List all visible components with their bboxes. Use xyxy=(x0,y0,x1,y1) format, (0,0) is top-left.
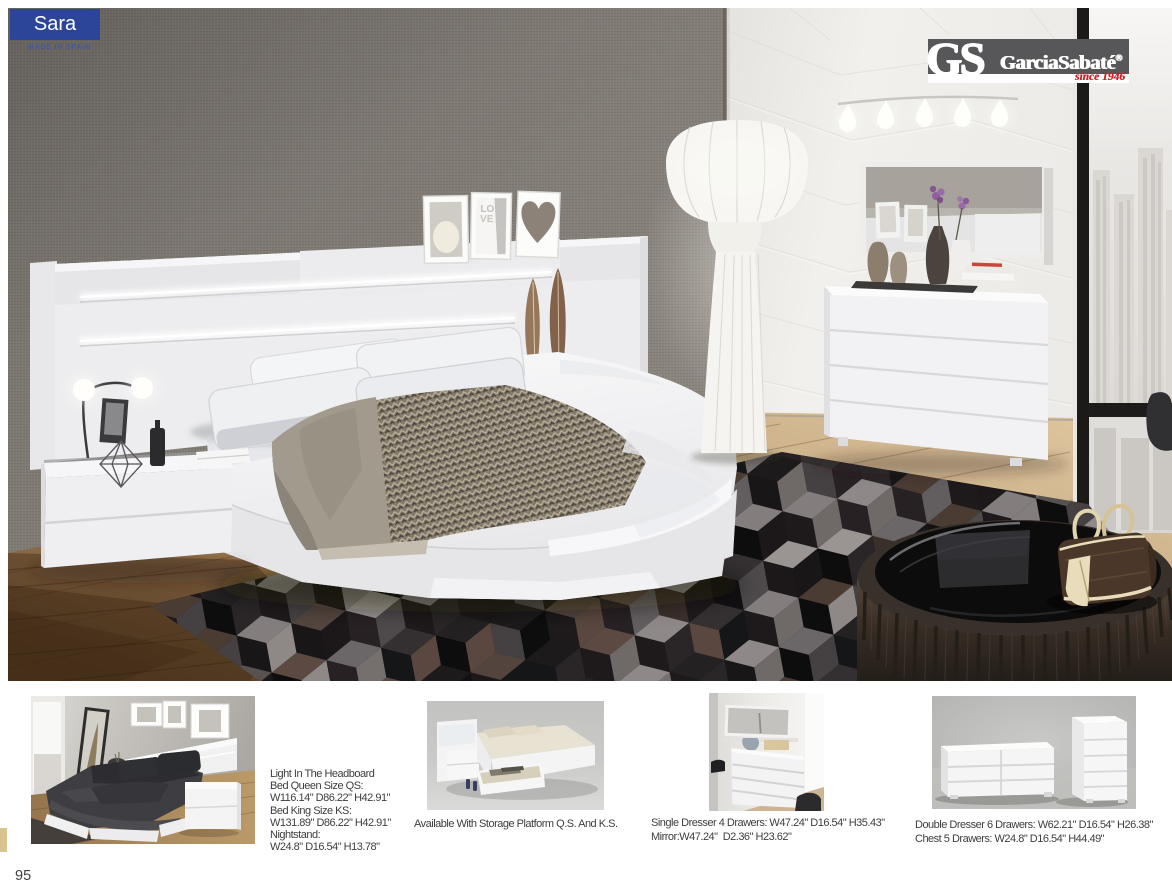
svg-text:VE: VE xyxy=(480,214,494,225)
